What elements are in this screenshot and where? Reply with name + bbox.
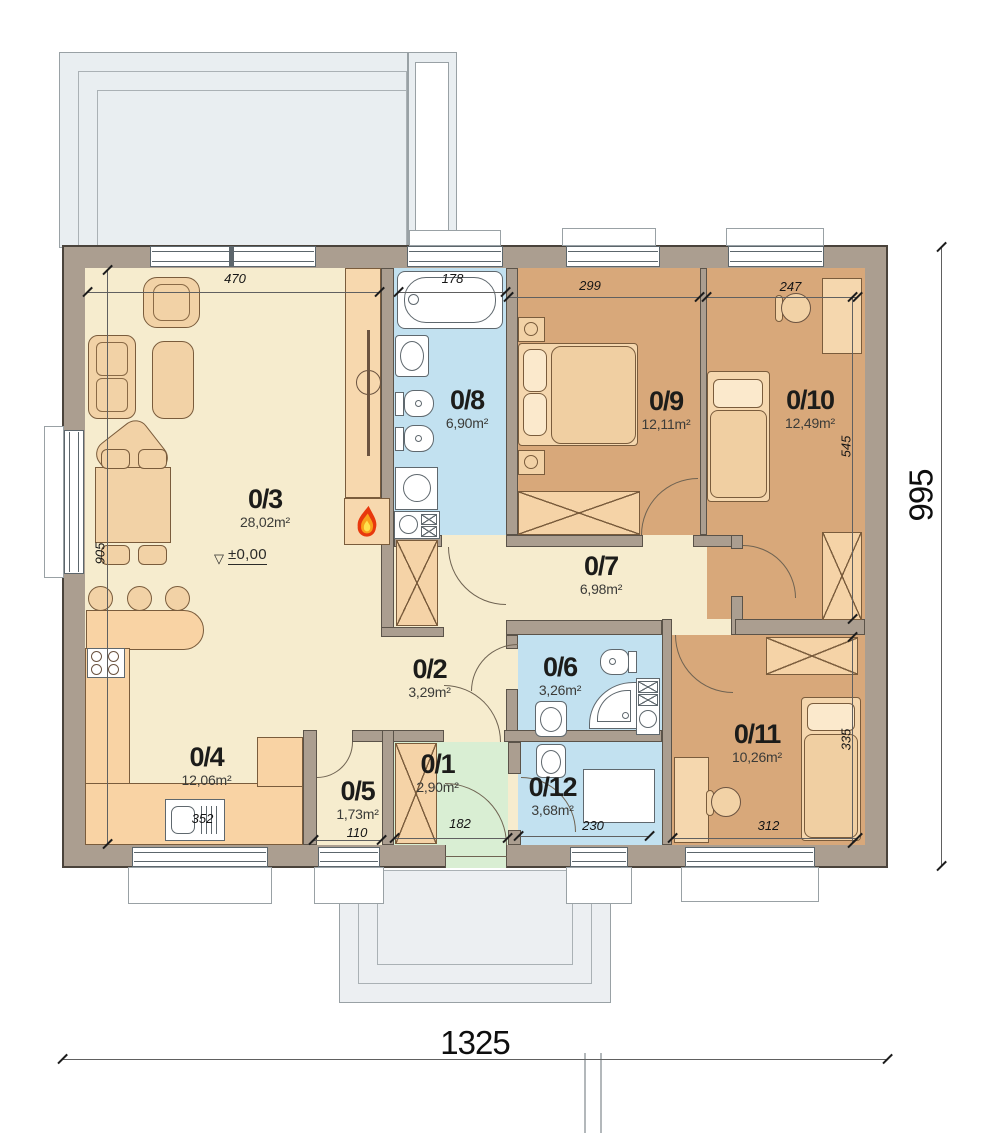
room-area: 12,06m²	[144, 772, 269, 789]
shower-drain	[622, 712, 629, 719]
window	[407, 246, 503, 267]
walkway-line	[584, 1053, 586, 1133]
room-number: 0/7	[551, 553, 651, 581]
room-number: 0/11	[709, 721, 805, 749]
dimension-line-total-depth	[941, 247, 942, 866]
level-triangle-icon: ▽	[214, 552, 224, 565]
room-number: 0/8	[428, 387, 506, 415]
dimension-line	[394, 838, 508, 839]
sofa-cushion	[96, 378, 128, 412]
flame-icon	[352, 503, 381, 540]
room-label-0-6: 0/6 3,26m²	[522, 654, 598, 698]
dim-text: 470	[205, 272, 265, 285]
window-sill	[726, 228, 824, 246]
vent-icon	[638, 681, 658, 693]
burner-icon	[91, 651, 102, 662]
room-area: 10,26m²	[709, 749, 805, 766]
burner-icon	[108, 651, 119, 662]
nightstand-lamp	[524, 455, 538, 469]
bar-stool	[165, 586, 190, 611]
washbasin-bowl	[540, 707, 562, 732]
bar-stool	[127, 586, 152, 611]
kitchen-bar-counter	[86, 610, 204, 650]
room-number: 0/6	[522, 654, 598, 682]
terrace-side-glazing	[415, 62, 449, 240]
window	[728, 246, 824, 267]
dim-text-total-depth: 995	[905, 466, 938, 526]
heater-vent-icon	[421, 514, 437, 525]
room-number: 0/3	[200, 486, 330, 514]
dim-text: 905	[94, 532, 107, 576]
room-area: 3,68m²	[505, 802, 600, 819]
wall-segment	[731, 535, 743, 549]
pillow	[523, 349, 547, 392]
dimension-line	[672, 838, 858, 839]
room-label-0-12: 0/12 3,68m²	[505, 774, 600, 818]
room-label-0-10: 0/10 12,49m²	[762, 387, 858, 431]
window	[570, 847, 628, 867]
dim-text: 335	[840, 718, 853, 762]
dim-text-total-width: 1325	[415, 1026, 535, 1059]
desk	[822, 278, 862, 354]
room-area: 12,11m²	[625, 416, 707, 433]
porch-edge-line	[377, 870, 573, 965]
tv-speaker-icon	[356, 370, 381, 395]
wall-segment	[381, 627, 444, 637]
window-sill	[128, 867, 272, 904]
dimension-line	[87, 292, 380, 293]
dim-text: 230	[573, 819, 613, 832]
window-sill	[314, 867, 384, 904]
room-area: 28,02m²	[200, 514, 330, 531]
wall-segment	[303, 730, 317, 845]
window-sill	[409, 230, 501, 246]
window-sill	[566, 867, 632, 904]
floor-plan-canvas: 470 178 299 247 905 545 335 352 110 182 …	[0, 0, 1000, 1133]
wardrobe	[396, 540, 438, 626]
room-number: 0/5	[320, 778, 395, 806]
heater-dial	[399, 515, 418, 534]
terrace-edge-line	[97, 90, 407, 248]
boiler-dial	[639, 710, 657, 728]
room-label-0-3: 0/3 28,02m²	[200, 486, 330, 530]
window	[318, 847, 380, 867]
wall-segment	[662, 619, 672, 845]
heater-vent-icon	[421, 526, 437, 537]
burner-icon	[91, 664, 102, 675]
threshold-line	[445, 856, 507, 857]
wall-segment	[352, 730, 444, 742]
walkway-line	[600, 1053, 602, 1133]
room-number: 0/1	[400, 751, 475, 779]
bidet-drain	[415, 435, 422, 442]
terrace-divider	[407, 52, 409, 248]
dim-text: 299	[565, 279, 615, 292]
room-number: 0/4	[144, 744, 269, 772]
room-label-0-1: 0/1 2,90m²	[400, 751, 475, 795]
window-sill	[44, 426, 64, 578]
dining-chair	[101, 449, 130, 469]
blanket	[551, 346, 636, 444]
window-mullion	[229, 246, 234, 267]
dim-text: 247	[763, 280, 818, 293]
washbasin-bowl	[541, 750, 561, 774]
dining-chair	[138, 545, 167, 565]
pillow	[713, 379, 763, 408]
room-number: 0/10	[762, 387, 858, 415]
vent-icon	[638, 694, 658, 706]
washbasin-bowl	[400, 341, 424, 371]
bathtub-drain	[408, 294, 419, 305]
bar-stool	[88, 586, 113, 611]
room-label-0-2: 0/2 3,29m²	[392, 656, 467, 700]
dimension-line	[508, 297, 700, 298]
room-area: 3,29m²	[392, 684, 467, 701]
wall-segment	[506, 535, 643, 547]
room-area: 6,90m²	[428, 415, 506, 432]
wall-segment	[506, 268, 518, 535]
level-value: ±0,00	[228, 546, 267, 565]
toilet-drain	[415, 400, 422, 407]
room-number: 0/9	[625, 388, 707, 416]
washing-machine-drum	[403, 474, 431, 502]
dimension-line	[518, 836, 650, 837]
toilet-drain	[609, 658, 616, 665]
wardrobe	[766, 637, 858, 675]
room-area: 1,73m²	[320, 806, 395, 823]
room-label-0-5: 0/5 1,73m²	[320, 778, 395, 822]
wall-segment	[508, 742, 521, 774]
nightstand-lamp	[524, 322, 538, 336]
window	[566, 246, 660, 267]
blanket	[710, 410, 767, 498]
wall-segment	[506, 620, 662, 635]
room-number: 0/2	[392, 656, 467, 684]
dim-text: 178	[425, 272, 480, 285]
level-mark: ▽ ±0,00	[214, 546, 267, 565]
window	[132, 847, 268, 867]
armchair-cushion	[153, 284, 190, 321]
dim-text: 110	[337, 826, 377, 839]
room-label-0-8: 0/8 6,90m²	[428, 387, 506, 431]
burner-icon	[108, 664, 119, 675]
room-label-0-11: 0/11 10,26m²	[709, 721, 805, 765]
room-area: 3,26m²	[522, 682, 598, 699]
wardrobe	[822, 532, 862, 620]
wall-segment	[735, 619, 865, 635]
wardrobe	[518, 491, 640, 535]
room-area: 2,90m²	[400, 779, 475, 796]
dining-chair	[138, 449, 167, 469]
bidet-back	[395, 427, 404, 451]
pillow	[523, 393, 547, 436]
dim-text: 182	[440, 817, 480, 830]
room-area: 12,49m²	[762, 415, 858, 432]
dimension-line	[398, 292, 506, 293]
window	[64, 430, 84, 574]
dimension-line	[313, 840, 382, 841]
dim-text: 312	[746, 819, 791, 832]
dim-text: 352	[180, 812, 225, 825]
room-label-0-9: 0/9 12,11m²	[625, 388, 707, 432]
room-number: 0/12	[505, 774, 600, 802]
room-area: 6,98m²	[551, 581, 651, 598]
room-label-0-7: 0/7 6,98m²	[551, 553, 651, 597]
window-sill	[681, 867, 819, 902]
office-chair	[711, 787, 741, 817]
desk	[674, 757, 709, 843]
window	[685, 847, 815, 867]
dimension-line	[706, 297, 858, 298]
wall-segment	[381, 268, 394, 635]
window-sill	[562, 228, 656, 246]
toilet-tank	[628, 651, 637, 673]
toilet-tank	[395, 392, 404, 416]
chaise	[152, 341, 194, 419]
sofa-cushion	[96, 342, 128, 376]
room-label-0-4: 0/4 12,06m²	[144, 744, 269, 788]
